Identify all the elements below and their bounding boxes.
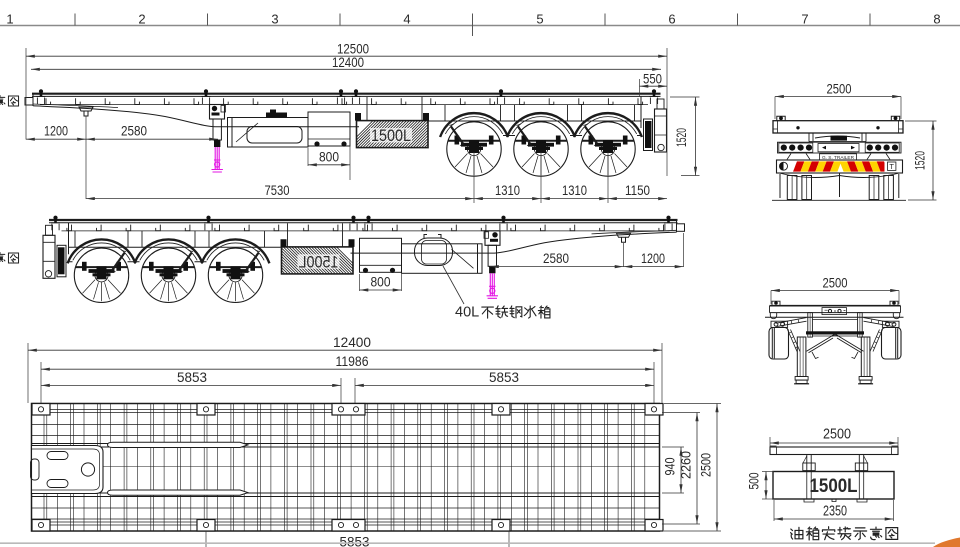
svg-text:1310: 1310	[562, 182, 587, 198]
svg-text:40L: 40L	[455, 305, 479, 321]
svg-text:940: 940	[662, 457, 678, 475]
svg-text:1200: 1200	[641, 250, 665, 266]
svg-text:1310: 1310	[495, 182, 520, 198]
svg-text:1500L: 1500L	[371, 127, 411, 145]
svg-text:1520: 1520	[673, 128, 689, 147]
svg-text:2580: 2580	[543, 250, 569, 266]
svg-text:5853: 5853	[340, 534, 370, 547]
svg-text:G. S. TRAILER: G. S. TRAILER	[822, 155, 855, 160]
svg-text:800: 800	[371, 274, 391, 290]
svg-text:2350: 2350	[823, 504, 847, 520]
svg-text:5: 5	[536, 12, 543, 27]
svg-text:800: 800	[319, 149, 339, 165]
svg-text:6: 6	[668, 12, 675, 27]
svg-text:2500: 2500	[823, 427, 851, 443]
svg-text:8: 8	[933, 12, 940, 27]
svg-text:1500L: 1500L	[810, 476, 858, 497]
svg-text:2500: 2500	[698, 453, 714, 477]
svg-text:2580: 2580	[121, 123, 147, 139]
svg-text:3: 3	[271, 12, 278, 27]
svg-text:5853: 5853	[489, 369, 519, 385]
svg-text:1200: 1200	[44, 123, 68, 139]
svg-text:1: 1	[6, 12, 13, 27]
svg-text:12400: 12400	[333, 334, 371, 350]
svg-text:500: 500	[746, 472, 762, 489]
svg-text:1520: 1520	[912, 151, 928, 170]
svg-text:4: 4	[403, 12, 410, 27]
svg-text:11986: 11986	[336, 353, 369, 369]
svg-text:2500: 2500	[827, 81, 852, 97]
svg-text:1150: 1150	[625, 182, 650, 198]
svg-text:7: 7	[801, 12, 808, 27]
svg-text:5853: 5853	[177, 369, 207, 385]
svg-text:12400: 12400	[332, 54, 364, 70]
svg-text:550: 550	[643, 71, 662, 87]
svg-text:2500: 2500	[823, 275, 848, 291]
svg-text:2260: 2260	[678, 451, 694, 479]
svg-text:T: T	[889, 162, 894, 171]
svg-text:7530: 7530	[265, 182, 290, 198]
svg-text:2: 2	[138, 12, 145, 27]
